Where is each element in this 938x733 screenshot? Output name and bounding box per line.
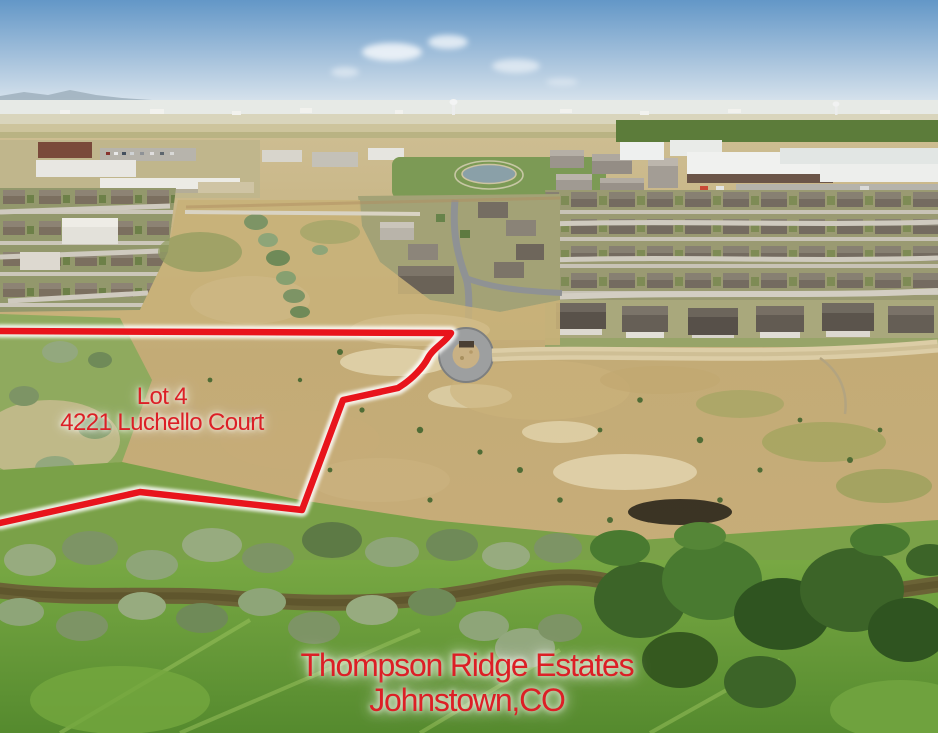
location-label-line2: Johnstown,CO (237, 683, 697, 718)
lot-label-line2: 4221 Luchello Court (22, 410, 302, 436)
location-label: Thompson Ridge Estates Johnstown,CO (237, 648, 697, 717)
scene-svg (0, 0, 938, 733)
lot-label: Lot 4 4221 Luchello Court (22, 384, 302, 436)
sky (0, 0, 938, 112)
location-label-line1: Thompson Ridge Estates (237, 648, 697, 683)
pond (462, 165, 516, 184)
aerial-photo: Lot 4 4221 Luchello Court Thompson Ridge… (0, 0, 938, 733)
hilltop-road (185, 212, 420, 214)
lot-label-line1: Lot 4 (22, 384, 302, 410)
suburb-right (545, 190, 938, 347)
parked-cars (106, 152, 174, 155)
